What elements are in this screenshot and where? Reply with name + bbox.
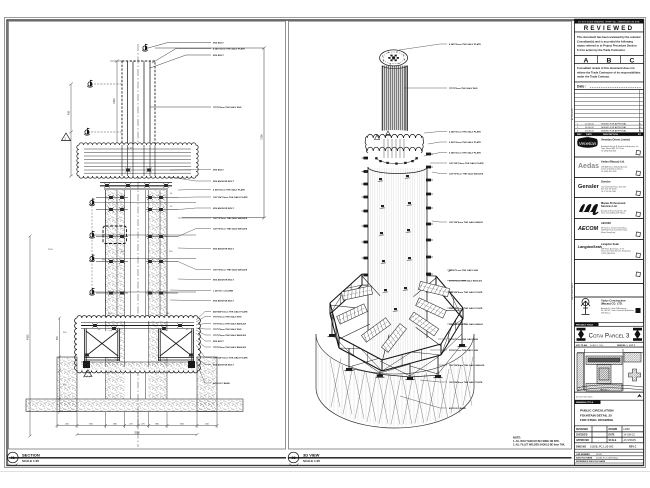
svg-text:400*200*8mm THK GALV PLATE: 400*200*8mm THK GALV PLATE: [449, 291, 483, 294]
svg-text:120*120*10mm THK GALV PLATE: 120*120*10mm THK GALV PLATE: [213, 196, 248, 199]
svg-text:M16 BOLT: M16 BOLT: [213, 170, 224, 172]
svg-text:3D VIEW: 3D VIEW: [303, 452, 320, 457]
svg-text:Gensler: Gensler: [601, 180, 611, 184]
svg-text:Services Ltd.: Services Ltd.: [601, 204, 617, 208]
svg-text:SCALE 1:25: SCALE 1:25: [303, 459, 320, 463]
svg-text:75*75*5mm THK GALV SHS: 75*75*5mm THK GALV SHS: [449, 87, 478, 90]
svg-text:1350: 1350: [113, 98, 116, 104]
svg-text:2. ALL FILLET WELDED SHOULD BE: 2. ALL FILLET WELDED SHOULD BE 6mm THK.: [513, 444, 565, 447]
svg-text:4 345*10mm THK GALV PLATE: 4 345*10mm THK GALV PLATE: [449, 43, 481, 46]
svg-text:50*50*5 mm THK GALV SHS: 50*50*5 mm THK GALV SHS: [449, 338, 479, 341]
svg-text:M16 BOLT: M16 BOLT: [213, 43, 224, 45]
svg-text:Venetian Orient Limited: Venetian Orient Limited: [601, 138, 630, 142]
svg-text:120*75*5mm THK GALV ANGLES: 120*75*5mm THK GALV ANGLES: [213, 217, 248, 220]
svg-text:KEY PLAN: KEY PLAN: [576, 344, 587, 347]
svg-text:450: 450: [68, 110, 71, 115]
svg-text:Date :: Date :: [577, 85, 586, 89]
svg-text:Shatin, Hong Kong: Shatin, Hong Kong: [601, 231, 615, 234]
svg-text:120*75*5mm THK GALV ANGLES: 120*75*5mm THK GALV ANGLES: [449, 173, 484, 176]
svg-text:PUBLIC CIRCULATION: PUBLIC CIRCULATION: [580, 409, 614, 413]
svg-text:75*75*5mm THK GALV ANGLES: 75*75*5mm THK GALV ANGLES: [213, 334, 246, 337]
svg-text:REV C: REV C: [629, 445, 637, 448]
svg-text:5150B_PCJ_05093.dwg: 5150B_PCJ_05093.dwg: [596, 458, 618, 460]
svg-text:Aedas: Aedas: [578, 163, 599, 170]
svg-text:status referred to in Projec: status referred to in Project Procedure …: [577, 44, 637, 48]
svg-text:A1 594 x 841: A1 594 x 841: [571, 107, 574, 120]
svg-text:M16 ANCHOR BOLT: M16 ANCHOR BOLT: [213, 248, 234, 251]
svg-text:Aedas (Macau) Ltd.: Aedas (Macau) Ltd.: [601, 160, 625, 164]
svg-text:under the Trade Contract.: under the Trade Contract.: [577, 75, 610, 79]
svg-text:150*150*8mm THK GALV PLATE: 150*150*8mm THK GALV PLATE: [449, 307, 483, 310]
svg-text:M16 ANCHOR BOLT: M16 ANCHOR BOLT: [213, 180, 234, 183]
svg-text:14-JUN-15: 14-JUN-15: [624, 435, 636, 437]
svg-text:M16 ANCHOR BOLT: M16 ANCHOR BOLT: [213, 300, 234, 303]
svg-text:51528: 51528: [596, 454, 602, 456]
svg-text:50*50*5 mm THK GALV SHS: 50*50*5 mm THK GALV SHS: [449, 269, 479, 272]
svg-text:150*150*8mm THK GALV ANGLES: 150*150*8mm THK GALV ANGLES: [449, 364, 485, 367]
svg-text:SCALE 1:25: SCALE 1:25: [22, 459, 39, 463]
svg-text:AECOM: AECOM: [601, 221, 611, 225]
svg-text:PARCEL 2: PARCEL 2: [600, 389, 610, 392]
svg-text:120*75*5mm THK GALV ANGLES: 120*75*5mm THK GALV ANGLES: [213, 269, 248, 272]
svg-text:(Macau) CO. LTD.: (Macau) CO. LTD.: [601, 302, 623, 306]
svg-text:AS SHOWN: AS SHOWN: [624, 439, 637, 442]
svg-text:PARCEL 1, LOT 2: PARCEL 1, LOT 2: [617, 344, 636, 347]
svg-text:20/F, Macau: 20/F, Macau: [601, 312, 610, 314]
svg-text:M16 BOLT: M16 BOLT: [213, 55, 224, 57]
svg-text:0m 25m 50m 100m: 0m 25m 50m 100m: [576, 397, 593, 399]
svg-text:NOTE:: NOTE:: [513, 436, 521, 440]
svg-text:FOUNTAIN DETAIL 25: FOUNTAIN DETAIL 25: [580, 413, 612, 417]
svg-text:T (852) 2830 3500: T (852) 2830 3500: [601, 253, 615, 255]
svg-text:DESIGNED: DESIGNED: [576, 429, 588, 431]
svg-text:Tel: (853) 8118 8118: Tel: (853) 8118 8118: [601, 150, 616, 152]
svg-text:M16 ANCHOR BOLT: M16 ANCHOR BOLT: [213, 279, 234, 282]
svg-text:Tel: 1 212 492 1400: Tel: 1 212 492 1400: [601, 191, 616, 193]
svg-text:150*150*8mm THK GALV ANGLE: 150*150*8mm THK GALV ANGLE: [449, 221, 483, 224]
svg-text:LMSZ: LMSZ: [624, 429, 631, 431]
svg-text:450*450*10mm THK GALV PLATE: 450*450*10mm THK GALV PLATE: [213, 311, 248, 314]
svg-text:2550: 2550: [134, 431, 140, 434]
svg-text:REFERENCE DWG FILE NAME: REFERENCE DWG FILE NAME: [576, 460, 606, 463]
svg-text:(typ): (typ): [102, 258, 106, 261]
svg-text:75*75*5mm THK GALV SHS: 75*75*5mm THK GALV SHS: [213, 106, 242, 109]
svg-text:50*50*5 mm THK GALV SHS: 50*50*5 mm THK GALV SHS: [449, 349, 479, 352]
svg-text:Consultant review of this: Consultant review of this document does …: [577, 66, 635, 70]
svg-text:4500: 4500: [27, 334, 30, 340]
svg-text:DWG NO: DWG NO: [576, 445, 586, 448]
svg-text:LangdonSeah: LangdonSeah: [578, 245, 602, 249]
svg-text:Langdon Seah: Langdon Seah: [601, 242, 619, 246]
svg-text:425*6 R.C BASE: 425*6 R.C BASE: [213, 382, 230, 385]
svg-text:1 1/2": 1 1/2": [128, 148, 133, 150]
svg-text:China Law Building 21/F, Macau: China Law Building 21/F, Macau: [601, 213, 625, 215]
svg-text:4 500*10mm THK GALV PLATE: 4 500*10mm THK GALV PLATE: [449, 141, 481, 144]
svg-text:REVIEWED: REVIEWED: [584, 25, 635, 32]
svg-text:DWG FILE NAME: DWG FILE NAME: [576, 457, 593, 460]
svg-text:125*125*10mm THK GALV PLATE: 125*125*10mm THK GALV PLATE: [449, 162, 484, 165]
svg-text:5.4 for action by the Tra: 5.4 for action by the Trade Contractor.: [577, 48, 626, 52]
svg-text:ISSUED FOR APPROVAL: ISSUED FOR APPROVAL: [601, 130, 627, 133]
svg-text:DATE: DATE: [609, 434, 616, 437]
svg-text:75*75*5mm THK GALV SHS: 75*75*5mm THK GALV SHS: [213, 328, 242, 331]
svg-text:Tel: (853) 2871 5622: Tel: (853) 2871 5622: [601, 171, 617, 173]
svg-text:50*50*5mm THK GALV ANGLES: 50*50*5mm THK GALV ANGLES: [449, 280, 482, 283]
svg-text:Venetian: Venetian: [579, 141, 597, 146]
svg-text:APPROVED: APPROVED: [576, 439, 589, 442]
svg-text:This document has been reviewe: This document has been reviewed by the r…: [577, 35, 641, 39]
svg-text:SCALE: SCALE: [609, 439, 617, 442]
svg-text:FOR STEEL DRAWING: FOR STEEL DRAWING: [580, 418, 614, 422]
svg-text:(typ): (typ): [102, 233, 106, 236]
svg-text:AECOM: AECOM: [577, 226, 599, 232]
svg-text:M16 ANCHOR BOLT: M16 ANCHOR BOLT: [213, 207, 234, 210]
svg-text:150*150*10mm THK GALV PLATE: 150*150*10mm THK GALV PLATE: [213, 357, 248, 360]
svg-text:75*75*5mm THK GALV ANGLES: 75*75*5mm THK GALV ANGLES: [213, 323, 246, 326]
svg-text:425*6 R.C BASE: 425*6 R.C BASE: [449, 407, 466, 410]
svg-text:HALF SIZE PRINT: HALF SIZE PRINT: [571, 283, 574, 300]
svg-text:M16 BOLT: M16 BOLT: [213, 341, 224, 343]
svg-text:75*75*5mm THK GALV ANGLES: 75*75*5mm THK GALV ANGLES: [213, 346, 246, 349]
svg-text:Consultant(s) and is accord: Consultant(s) and is accorded the follow…: [577, 39, 633, 43]
svg-text:1. ALL BOLT SHOULD BE FIXING O: 1. ALL BOLT SHOULD BE FIXING ON SITE.: [513, 440, 560, 443]
svg-text:4 500*10mm THK GALV PLATE: 4 500*10mm THK GALV PLATE: [213, 189, 245, 192]
svg-text:4 345*10mm THK GALV PLATE: 4 345*10mm THK GALV PLATE: [449, 152, 481, 155]
svg-text:75*75*5mm THK GALV SHS: 75*75*5mm THK GALV SHS: [213, 316, 242, 319]
svg-text:150*150*8mm THK GALV ANGLE: 150*150*8mm THK GALV ANGLE: [449, 323, 483, 326]
svg-text:CHECKED: CHECKED: [576, 435, 588, 437]
svg-text:SCALE 1:7500: SCALE 1:7500: [590, 344, 604, 347]
svg-text:120*75*5mm THK GALV ANGLES: 120*75*5mm THK GALV ANGLES: [213, 228, 248, 231]
svg-text:M16 ANCHOR BOLT: M16 ANCHOR BOLT: [213, 364, 234, 367]
svg-text:5150B_PCJ_05-093: 5150B_PCJ_05-093: [590, 444, 614, 448]
svg-text:relieve the Trade Contractor o: relieve the Trade Contractor of its resp…: [577, 70, 641, 74]
svg-text:150*150*8mm THK GALV PLATE: 150*150*8mm THK GALV PLATE: [449, 381, 483, 384]
svg-text:a 300 R.C COLUMN: a 300 R.C COLUMN: [213, 291, 233, 293]
svg-text:7200: 7200: [260, 134, 264, 140]
svg-text:4 345*10mm THK GALV PLATE: 4 345*10mm THK GALV PLATE: [449, 131, 481, 134]
svg-text:4 345*10mm THK GALV PLATE: 4 345*10mm THK GALV PLATE: [213, 48, 245, 51]
svg-text:CAD NUMBER: CAD NUMBER: [576, 453, 590, 456]
svg-text:DRAWING TITLE: DRAWING TITLE: [576, 401, 594, 404]
svg-text:DRAWN: DRAWN: [609, 428, 618, 431]
svg-text:Gensler: Gensler: [578, 184, 600, 190]
svg-text:SECTION: SECTION: [22, 452, 40, 457]
